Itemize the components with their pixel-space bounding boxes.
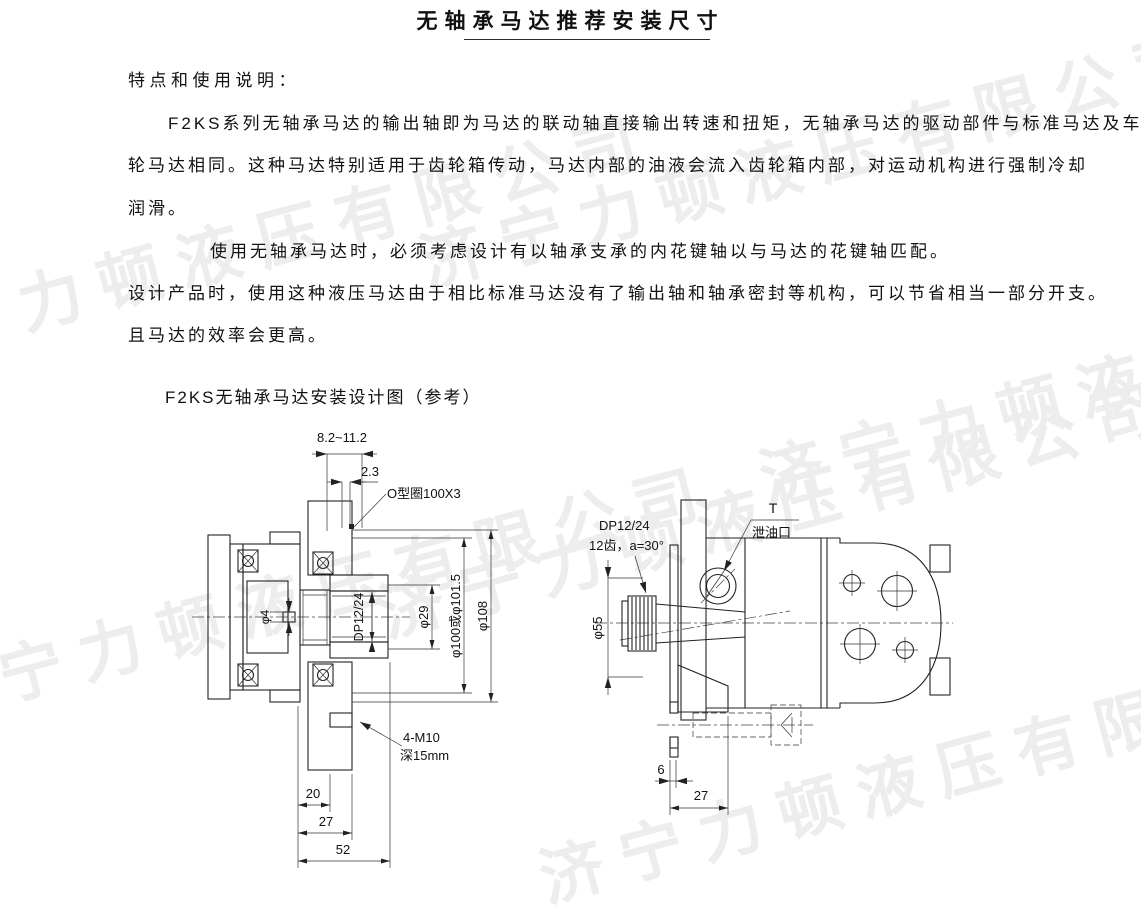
dim-spline: DP12/24 <box>352 593 366 642</box>
port-circle <box>877 571 917 611</box>
bearing <box>238 550 258 572</box>
bolt-depth-label: 深15mm <box>400 748 449 763</box>
right-side-drawing: DP12/24 12齿，a=30° T 泄油口 φ55 6 27 <box>585 480 960 825</box>
title-underline <box>464 39 710 40</box>
splined-shaft <box>622 596 745 651</box>
port-letter: T <box>769 500 778 516</box>
port-circle <box>840 624 880 664</box>
dim-dia55: φ55 <box>590 617 605 640</box>
port-name-label: 泄油口 <box>752 525 791 540</box>
dim-27-right: 27 <box>694 788 708 803</box>
dim-dia100: φ100或φ101.5 <box>448 574 463 658</box>
bolt-hole <box>330 713 352 727</box>
oring-marker <box>349 524 354 529</box>
bearing <box>313 664 333 686</box>
dim-6: 6 <box>657 762 664 777</box>
dim-offset: 2.3 <box>361 464 379 479</box>
sleeve-wall-bottom <box>330 642 388 658</box>
section-heading: 特点和使用说明： <box>128 66 300 91</box>
oring-label: O型圈100X3 <box>387 486 461 501</box>
port-circle <box>839 570 865 596</box>
paragraph-line: F2KS系列无轴承马达的输出轴即为马达的联动轴直接输出转速和扭矩，无轴承马达的驱… <box>168 109 1141 134</box>
flange-wedge <box>678 665 728 712</box>
paragraph-line: 且马达的效率会更高。 <box>128 321 328 346</box>
dim-27: 27 <box>319 814 333 829</box>
dim-top-range: 8.2~11.2 <box>317 430 367 445</box>
drain-port <box>700 568 736 604</box>
hub-nub-bottom <box>270 690 300 702</box>
paragraph-line: 润滑。 <box>128 194 188 219</box>
paragraph-line: 使用无轴承马达时，必须考虑设计有以轴承支承的内花键轴以与马达的花键轴匹配。 <box>210 237 950 262</box>
dim-20: 20 <box>306 786 320 801</box>
mounting-bolt <box>657 702 813 748</box>
hub-nub-top <box>270 532 300 544</box>
spline-label: DP12/24 <box>599 518 650 533</box>
bearing <box>238 664 258 686</box>
page-title: 无轴承马达推荐安装尺寸 <box>0 5 1141 35</box>
dim-dia4: φ4 <box>258 609 272 624</box>
tilt-axis-line <box>620 611 790 640</box>
mounting-plate-top <box>308 501 352 575</box>
dim-dia29: φ29 <box>416 606 431 629</box>
document-page: 无轴承马达推荐安装尺寸 特点和使用说明： F2KS系列无轴承马达的输出轴即为马达… <box>0 0 1141 876</box>
bearing <box>313 552 333 574</box>
sleeve-wall-top <box>330 575 388 591</box>
port-circle <box>892 637 918 663</box>
dim-dia108: φ108 <box>475 601 490 631</box>
bolt-label: 4-M10 <box>403 730 440 745</box>
paragraph-line: 轮马达相同。这种马达特别适用于齿轮箱传动，马达内部的油液会流入齿轮箱内部，对运动… <box>128 151 1088 176</box>
dim-52: 52 <box>336 842 350 857</box>
front-housing-column <box>681 500 706 720</box>
paragraph-line: 设计产品时，使用这种液压马达由于相比标准马达没有了输出轴和轴承密封等机构，可以节… <box>128 279 1108 304</box>
figure-caption: F2KS无轴承马达安装设计图（参考） <box>165 383 482 408</box>
spline-teeth-label: 12齿，a=30° <box>589 538 664 553</box>
left-section-drawing: φ4 DP12/24 φ29 φ100或φ101.5 φ108 8.2~11.2 <box>190 428 510 873</box>
spline-coupling <box>300 590 330 645</box>
